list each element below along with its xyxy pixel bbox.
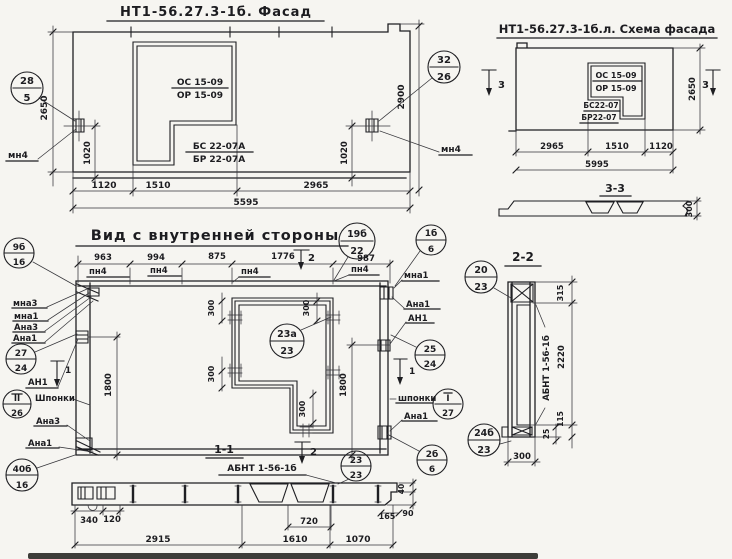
facade-dim-2900: 2900: [397, 84, 407, 109]
interior-label-ana3: Ана3: [14, 323, 38, 333]
interior-dim-875: 875: [208, 252, 226, 262]
interior-dim-300-3: 300: [207, 365, 216, 382]
schema-dim-2965: 2965: [540, 142, 564, 152]
interior-callout-II-bottom: 26: [11, 409, 23, 419]
interior-callout-1b-bottom: 6: [428, 245, 434, 255]
blueprint-sheet: НТ1-56.27.3-1б. Фасад ОС 15-09 ОР 15-09 …: [0, 0, 732, 559]
facade-title: НТ1-56.27.3-1б. Фасад: [120, 5, 312, 20]
interior-section-mark-1-right: 1: [409, 367, 415, 377]
interior-pn4-3: пн4: [241, 267, 259, 277]
schema-section-mark-right: 3: [702, 80, 709, 91]
s11-callout-bottom: 23: [350, 471, 363, 481]
facade-dim-1120: 1120: [91, 181, 116, 191]
s22-title: 2-2: [512, 250, 534, 264]
s11-section-mark-2: 2: [310, 447, 317, 458]
interior-section-mark-1-left: 1: [65, 366, 71, 376]
interior-callout-40-top: 40б: [13, 464, 32, 475]
schema-section33-title: 3-3: [605, 182, 625, 195]
interior-callout-23a-bottom: 23: [280, 346, 293, 357]
interior-dim-1800-left: 1800: [104, 373, 114, 397]
interior-label-mna1-right: мна1: [404, 271, 429, 281]
s22-callout-bottom-top: 24б: [474, 428, 494, 439]
s11-dim-165: 165: [379, 512, 396, 521]
interior-label-an1-left: АН1: [28, 378, 48, 388]
interior-label-ana1-lower: Ана1: [28, 439, 52, 449]
s11-dim-40: 40: [397, 484, 406, 494]
facade-dim-2965: 2965: [303, 181, 328, 191]
interior-callout-I-top: I: [446, 394, 449, 404]
facade-window-mark-top: ОС 15-09: [177, 78, 223, 88]
facade-dim-1510: 1510: [145, 181, 170, 191]
s11-key-trapezoids: [250, 484, 329, 502]
section-1-1: 1-1 2 АБНТ 1-56-1б 23 23 340 120 2915 16…: [71, 442, 416, 548]
interior-label-ana3-lower: Ана3: [36, 417, 60, 427]
schema-dim-1120: 1120: [649, 142, 673, 152]
interior-pn4-4: пн4: [351, 265, 369, 275]
interior-leader-lines: [33, 251, 420, 468]
s11-embed-details: [78, 487, 115, 499]
facade-anchor-label-left: мн4: [8, 151, 28, 161]
photo-edge-shadow: [28, 553, 538, 559]
schema-section33-bar: [499, 201, 688, 216]
interior-label-mna1: мна1: [14, 312, 39, 322]
facade-dim-1020-right: 1020: [340, 141, 350, 165]
facade-dim-2650: 2650: [40, 95, 50, 120]
schema-section-mark-left: 3: [498, 80, 505, 91]
facade-anchor-label-right: мн4: [441, 145, 461, 155]
interior-dim-994: 994: [147, 253, 165, 263]
s11-dim-1070: 1070: [345, 535, 370, 545]
s11-embed-hook: [88, 505, 97, 510]
s11-dim-2915: 2915: [145, 535, 170, 545]
schema-dim-total: 5995: [585, 160, 609, 170]
interior-callout-2b-bottom: 6: [429, 465, 435, 475]
s11-dim-90: 90: [402, 509, 414, 518]
facade-anchor-details: [73, 27, 378, 132]
schema-title: НТ1-56.27.3-1б.л. Схема фасада: [499, 22, 716, 36]
interior-callout-27-top: 27: [15, 349, 28, 359]
interior-label-an1-right: АН1: [408, 314, 428, 324]
interior-dim-300-2: 300: [302, 299, 311, 316]
schema-section33-dim-300: 300: [685, 200, 694, 217]
interior-callout-1b-top: 1б: [425, 228, 438, 239]
interior-dim-300-4: 300: [298, 400, 307, 417]
interior-label-ana1: Ана1: [13, 334, 37, 344]
interior-label-ana1-right-lower: Ана1: [404, 412, 428, 422]
s22-dim-300: 300: [513, 452, 531, 462]
s11-title: 1-1: [214, 443, 234, 456]
interior-callout-II-top: II: [14, 394, 20, 404]
s11-dim-720: 720: [300, 517, 318, 527]
facade-block-mark-bottom: БР 22-07А: [193, 155, 245, 165]
s22-recess: [517, 305, 530, 425]
s11-dim-1610: 1610: [282, 535, 307, 545]
facade-dim-1020-left: 1020: [83, 141, 93, 165]
s11-label-abnt: АБНТ 1-56-1б: [227, 463, 296, 474]
schema-window-mark-bottom: ОР 15-09: [595, 84, 636, 93]
section-2-2: 2-2 20 23 24б 23 АБНТ 1-56-1б 315 2220 1…: [465, 250, 577, 466]
schema-block-mark-top: БС22-07: [583, 101, 618, 110]
s22-callout-top-bottom: 23: [474, 282, 487, 293]
s11-bar-outline: [72, 483, 397, 505]
interior-callout-9b-top: 9б: [13, 242, 26, 253]
interior-label-mna3: мна3: [13, 299, 38, 309]
interior-section-mark-2: 2: [308, 253, 315, 264]
interior-callout-25-top: 25: [424, 345, 437, 355]
schema-window-mark-top: ОС 15-09: [595, 71, 636, 80]
interior-title: Вид с внутренней стороны: [91, 228, 339, 244]
interior-label-shponki-left: Шпонки: [35, 394, 75, 404]
interior-callout-2b-top: 2б: [426, 449, 439, 460]
interior-pn4-1: пн4: [89, 267, 107, 277]
interior-dim-1776: 1776: [271, 252, 295, 262]
s11-section-arrowhead: [299, 456, 305, 464]
s22-dim-115: 115: [556, 411, 565, 427]
interior-callout-23a-top: 23а: [277, 329, 297, 340]
interior-callout-19-top: 19б: [347, 229, 367, 240]
interior-callout-I-bottom: 27: [442, 409, 454, 419]
interior-dim-963: 963: [94, 253, 112, 263]
facade-window-mark-bottom: ОР 15-09: [177, 91, 223, 101]
schema-view: НТ1-56.27.3-1б.л. Схема фасада ОС 15-09 …: [482, 22, 720, 220]
interior-pn4-2: пн4: [150, 266, 168, 276]
interior-callout-40-bottom: 16: [16, 481, 29, 491]
facade-view: НТ1-56.27.3-1б. Фасад ОС 15-09 ОР 15-09 …: [6, 5, 472, 213]
facade-callout-right-top: 32: [437, 55, 451, 66]
interior-dim-ticks: [75, 261, 393, 458]
s11-callout-top: 23: [350, 456, 363, 466]
s22-dim-315: 315: [556, 284, 565, 301]
s22-callout-bottom-bottom: 23: [477, 445, 490, 456]
schema-block-mark-bottom: БР22-07: [581, 113, 616, 122]
interior-callout-25-bottom: 24: [424, 360, 437, 370]
s22-callout-dividers: [466, 277, 499, 440]
s22-dim-2220: 2220: [557, 345, 567, 369]
facade-callout-left-bottom: 5: [24, 93, 31, 104]
s22-callout-top-top: 20: [474, 265, 488, 276]
blueprint-canvas: НТ1-56.27.3-1б. Фасад ОС 15-09 ОР 15-09 …: [0, 0, 732, 559]
interior-dim-300-1: 300: [207, 299, 216, 316]
s22-label-abnt: АБНТ 1-56-1б: [541, 335, 552, 401]
interior-label-ana1-right: Ана1: [406, 300, 430, 310]
interior-callout-9b-bottom: 16: [13, 258, 26, 268]
interior-label-shponki-right: шпонки: [398, 394, 436, 404]
facade-callout-left-top: 28: [20, 76, 34, 87]
interior-callout-19-bottom: 22: [350, 246, 363, 257]
s11-dim-120: 120: [103, 515, 121, 525]
schema-dim-1510: 1510: [605, 142, 629, 152]
schema-dim-2650: 2650: [688, 77, 698, 101]
s11-dim-340: 340: [80, 516, 98, 526]
interior-dim-1800-right: 1800: [339, 373, 349, 397]
facade-callout-right-bottom: 26: [437, 72, 451, 83]
facade-dim-total: 5595: [233, 198, 258, 208]
s22-dim-25: 25: [542, 429, 551, 439]
interior-window-outline: [232, 298, 333, 433]
interior-callout-27-bottom: 24: [15, 364, 28, 374]
facade-block-mark-top: БС 22-07А: [193, 142, 245, 152]
